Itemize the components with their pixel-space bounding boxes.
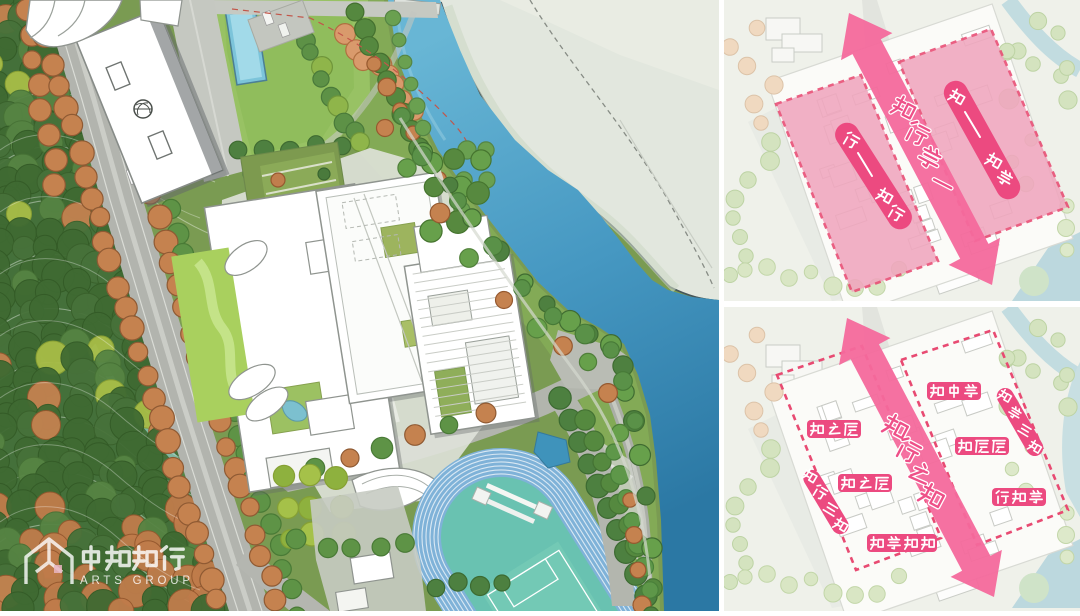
svg-text:ARTS GROUP: ARTS GROUP xyxy=(80,575,194,587)
